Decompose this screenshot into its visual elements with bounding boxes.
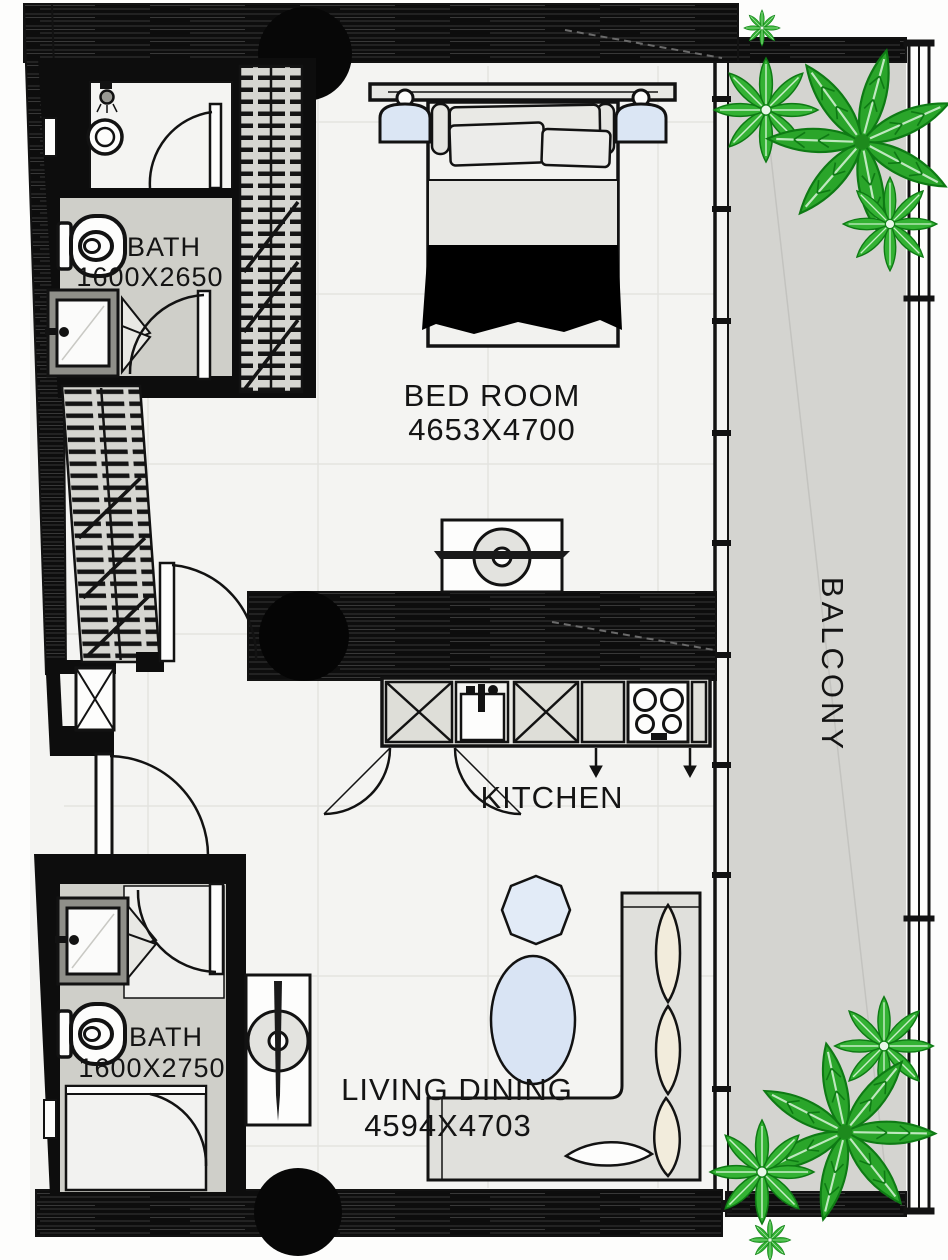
top-wall [24, 4, 738, 62]
kitchen-sink-icon [456, 682, 508, 742]
bath-bottom-door [210, 884, 223, 974]
shaft [76, 668, 114, 730]
bed-blanket [422, 245, 622, 334]
floor-plan-drawing: BATH 1600X2650 BED ROOM 4653X4700 KITCHE… [0, 0, 948, 1260]
living-dims: 4594X4703 [364, 1108, 532, 1143]
coffee-table [491, 876, 575, 1084]
wardrobe-top [240, 66, 302, 392]
console-table [246, 975, 310, 1125]
bath-top-door [198, 291, 210, 379]
balcony-name: BALCONY [815, 577, 850, 753]
sink-icon [55, 898, 128, 984]
bedroom-name: BED ROOM [404, 378, 581, 413]
drain-icon [88, 120, 122, 154]
dressing-table [434, 520, 570, 592]
shower-top-door [210, 104, 221, 188]
bedroom-dims: 4653X4700 [408, 412, 576, 447]
stove-icon [628, 682, 688, 742]
dining-table [491, 956, 575, 1084]
sink-icon [45, 290, 118, 376]
floor-plan-page: BATH 1600X2650 BED ROOM 4653X4700 KITCHE… [0, 0, 948, 1260]
kitchen-name: KITCHEN [480, 780, 623, 815]
balcony-railing [904, 40, 934, 1214]
kitchen-counter [382, 678, 710, 746]
bath-bottom-dims: 1600X2750 [78, 1053, 225, 1083]
living-name: LIVING DINING [341, 1072, 573, 1107]
shower-bottom [66, 1086, 206, 1190]
bottom-wall [36, 1190, 722, 1236]
bath-top-dims: 1600X2650 [76, 262, 223, 292]
column-bottom [254, 1168, 342, 1256]
balcony-bottom-wall [726, 1192, 906, 1216]
bath-bottom-name: BATH [129, 1022, 203, 1052]
kitchen-wall [248, 591, 716, 681]
bath-top-name: BATH [127, 232, 201, 262]
